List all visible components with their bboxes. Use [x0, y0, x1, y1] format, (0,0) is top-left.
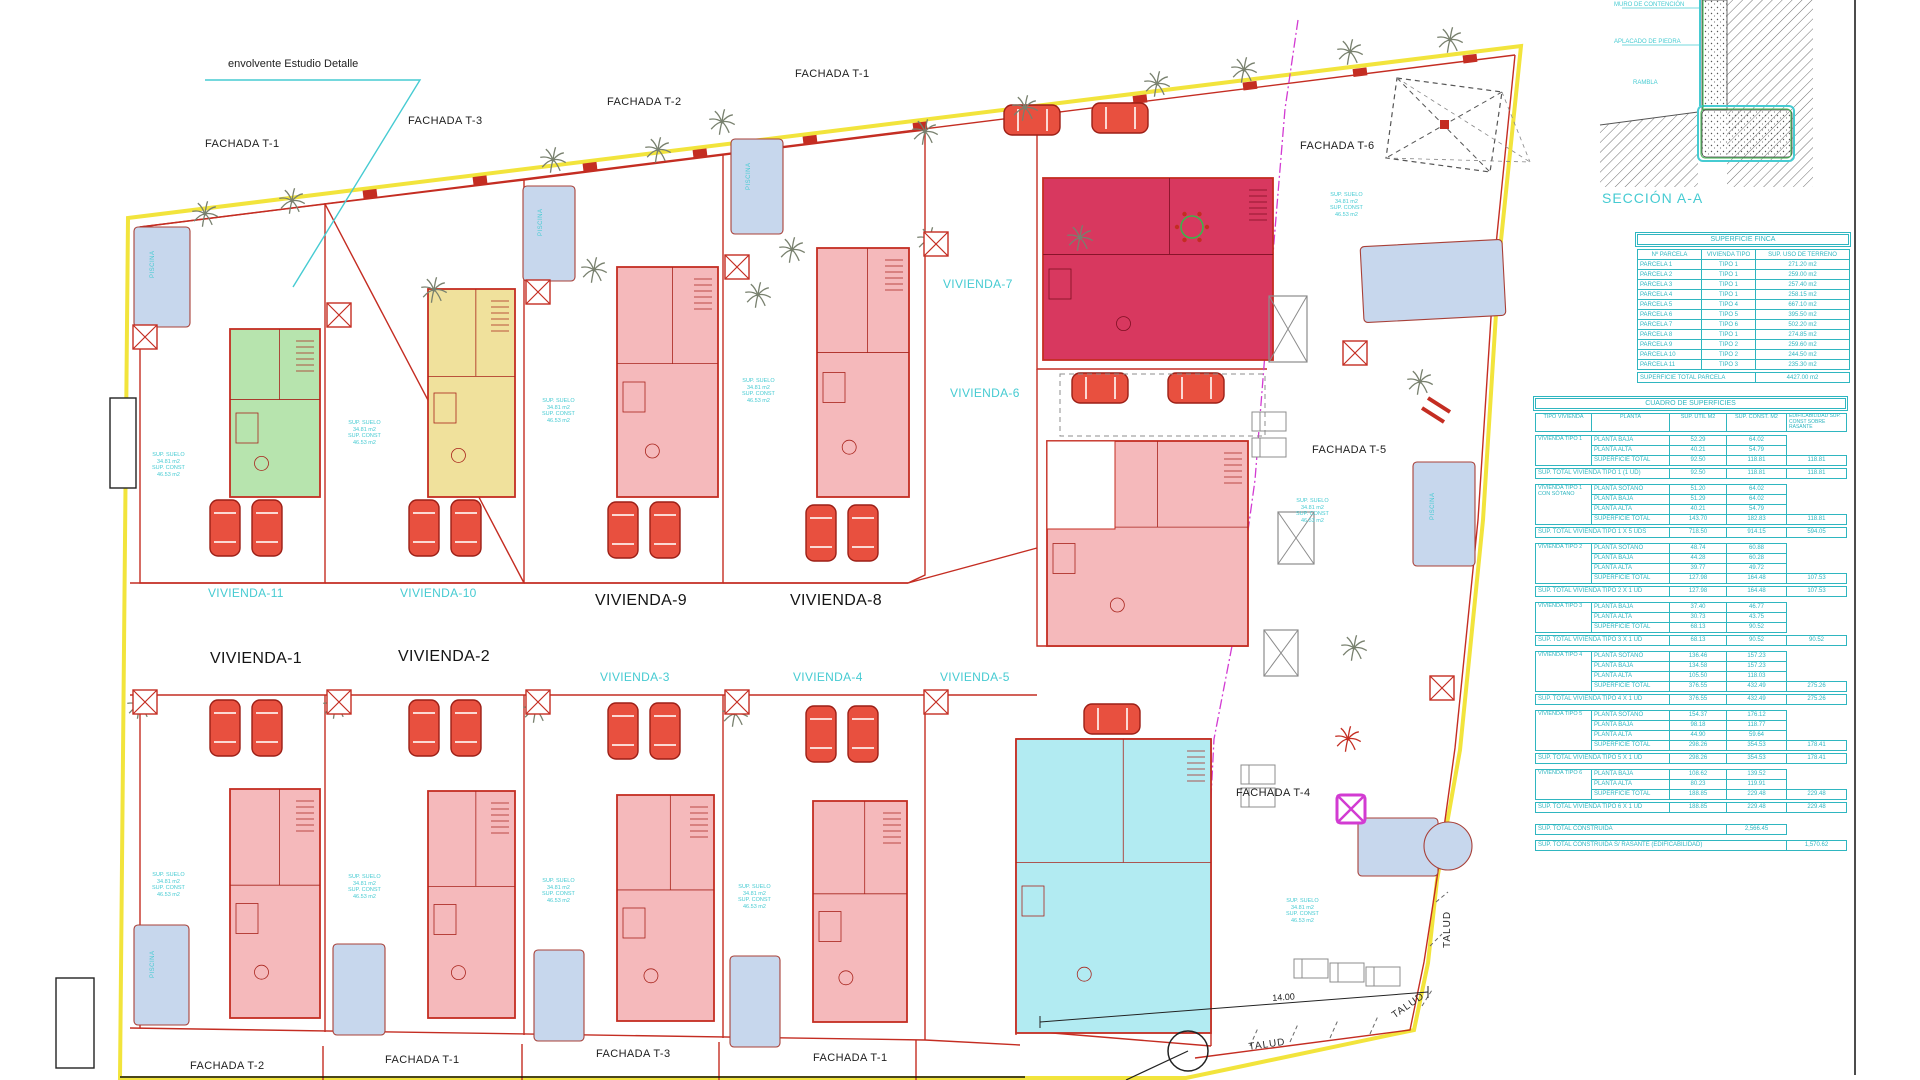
label-vivienda-v3: VIVIENDA-3: [600, 670, 670, 684]
table-cell: 127.98: [1670, 586, 1727, 596]
table-cell: 92.50: [1670, 468, 1727, 478]
table-cell: 298.26: [1670, 753, 1727, 763]
path-shape: [1437, 37, 1450, 40]
circle-shape: [1023, 106, 1026, 109]
house-annotation: SUP. SUELO34.81 m2SUP. CONST46.53 m2: [738, 884, 771, 910]
column-header: SUP. ÚTIL M2: [1670, 414, 1727, 432]
table-cell: 118.81: [1787, 514, 1847, 524]
table-cell: 59.64: [1727, 730, 1787, 740]
table-cell: PLANTA BAJA: [1592, 720, 1670, 730]
label-fachada-t1-topleft: FACHADA T-1: [205, 138, 280, 150]
table-cell: 49.72: [1727, 563, 1787, 573]
garage: [1047, 441, 1115, 529]
table-cell: SUP. TOTAL VIVIENDA TIPO 1 X 5 UDS: [1536, 527, 1670, 537]
rect-shape: [1702, 0, 1727, 110]
label-fachada-t5: FACHADA T-5: [1312, 444, 1387, 456]
house-vivienda-3: [617, 795, 714, 1021]
magenta-marker-icon: [1337, 795, 1365, 823]
table-row: VIVIENDA TIPO 5PLANTA SÓTANO154.37176.12: [1536, 710, 1847, 720]
car-icon: [210, 500, 240, 556]
table-row: VIVIENDA TIPO 6PLANTA BAJA108.62139.52: [1536, 769, 1847, 779]
table-cell: PARCELA 6: [1638, 310, 1702, 320]
label-fachada-t3-bottom: FACHADA T-3: [596, 1048, 671, 1060]
lounger-icon: [1366, 967, 1400, 986]
path-shape: [594, 263, 605, 270]
rect-shape: [1252, 438, 1286, 457]
table-cell: [1787, 720, 1847, 730]
annotation-line: 46.53 m2: [542, 898, 575, 905]
column-header: VIVIENDA TIPO: [1702, 250, 1756, 260]
label-vivienda-v11: VIVIENDA-11: [208, 586, 284, 600]
section-label-aplacado: APLACADO DE PIEDRA: [1614, 39, 1681, 45]
path-shape: [1347, 52, 1350, 65]
car-icon: [848, 505, 878, 561]
table-cell: 134.58: [1670, 661, 1727, 671]
car-icon: [608, 703, 638, 759]
table-cell: PLANTA ALTA: [1592, 671, 1670, 681]
table-cell: [1787, 602, 1847, 612]
label-fachada-t1-bottom-left: FACHADA T-1: [385, 1054, 460, 1066]
palm-tree-icon: [1437, 27, 1462, 52]
service-box: [110, 398, 136, 488]
table-shape: SUP. TOTAL CONSTRUIDA S/ RASANTE (EDIFIC…: [1535, 840, 1847, 851]
rect-shape: [1241, 765, 1275, 784]
table-row: SUP. TOTAL VIVIENDA TIPO 4 X 1 UD376.554…: [1536, 694, 1847, 704]
survey-mark-icon: [803, 135, 818, 145]
finca-table-title: SUPERFICIE FINCA: [1637, 234, 1849, 245]
path-shape: [540, 157, 553, 160]
path-shape: [1407, 379, 1420, 382]
table-cell: SUP. TOTAL VIVIENDA TIPO 3 X 1 UD: [1536, 635, 1670, 645]
car-icon: [1004, 105, 1060, 135]
table-cell: PARCELA 4: [1638, 290, 1702, 300]
label-piscina-3: PISCINA: [1430, 492, 1436, 520]
rect-shape: [1043, 178, 1273, 360]
annotation-line: SUP. SUELO: [152, 452, 185, 459]
path-shape: [658, 143, 669, 150]
x-marker-icon: [526, 280, 550, 304]
x-marker-icon: [327, 690, 351, 714]
table-cell: 229.48: [1787, 802, 1847, 812]
path-shape: [1244, 63, 1255, 70]
annotation-line: 46.53 m2: [1296, 518, 1329, 525]
envolvente-label: envolvente Estudio Detalle: [228, 58, 358, 70]
tbody-shape: VIVIENDA TIPO 3PLANTA BAJA37.4046.77PLAN…: [1536, 602, 1847, 632]
table-cell: 178.41: [1787, 753, 1847, 763]
x-marker-icon: [327, 303, 351, 327]
table-cell: PARCELA 5: [1638, 300, 1702, 310]
car-icon: [1084, 704, 1140, 734]
path-shape: [1420, 375, 1431, 382]
table-cell: 51.29: [1670, 494, 1727, 504]
table-shape: SUPERFICIE TOTAL PARCELA4427.00 m2: [1637, 372, 1850, 383]
rect-shape: [1440, 120, 1449, 129]
circle-shape: [656, 148, 659, 151]
table-cell: 244.50 m2: [1756, 350, 1850, 360]
table-shape: Nº PARCELAVIVIENDA TIPOSUP. USO DE TERRE…: [1637, 249, 1850, 370]
annotation-line: 46.53 m2: [348, 894, 381, 901]
table-row: VIVIENDA TIPO 4PLANTA SÓTANO136.46157.23: [1536, 651, 1847, 661]
label-vivienda-v5: VIVIENDA-5: [940, 670, 1010, 684]
pool: [523, 186, 575, 281]
rect-shape: [608, 703, 638, 759]
tbody-shape: VIVIENDA TIPO 6PLANTA BAJA108.62139.52PL…: [1536, 769, 1847, 799]
rect-shape: [451, 700, 481, 756]
table-cell: PLANTA SÓTANO: [1592, 484, 1670, 494]
circle-shape: [1418, 380, 1421, 383]
label-vivienda-v7: VIVIENDA-7: [943, 277, 1013, 291]
table-cell: 274.85 m2: [1756, 330, 1850, 340]
table-cell: [1787, 484, 1847, 494]
table-cell: PLANTA BAJA: [1592, 769, 1670, 779]
table-cell: 90.52: [1787, 635, 1847, 645]
line-shape: [1370, 1016, 1378, 1034]
table-shape: SUP. TOTAL VIVIENDA TIPO 2 X 1 UD127.981…: [1535, 586, 1847, 597]
circle-shape: [432, 288, 435, 291]
table-cell: SUPERFICIE TOTAL: [1592, 622, 1670, 632]
table-cell: 90.52: [1727, 635, 1787, 645]
table-cell: SUPERFICIE TOTAL: [1592, 573, 1670, 583]
table-cell: VIVIENDA TIPO 3: [1536, 602, 1592, 632]
circle-shape: [756, 293, 759, 296]
pool: [134, 925, 189, 1025]
circle-shape: [720, 120, 723, 123]
annotation-line: SUP. SUELO: [152, 872, 185, 879]
path-shape: [758, 288, 769, 295]
table-row: VIVIENDA TIPO 1 CON SÓTANOPLANTA SÓTANO5…: [1536, 484, 1847, 494]
circle-shape: [1448, 38, 1451, 41]
table-cell: TIPO 1: [1702, 290, 1756, 300]
annotation-line: SUP. CONST: [1286, 911, 1319, 918]
path-shape: [1157, 77, 1168, 84]
label-vivienda-v2: VIVIENDA-2: [398, 648, 490, 666]
house-vivienda-10: [428, 289, 515, 497]
path-shape: [722, 115, 733, 122]
tr-shape: TIPO VIVIENDAPLANTASUP. ÚTIL M2SUP. CONS…: [1536, 414, 1847, 432]
table-shape: VIVIENDA TIPO 5PLANTA SÓTANO154.37176.12…: [1535, 710, 1847, 751]
table-cell: 235.30 m2: [1756, 360, 1850, 370]
table-cell: 2,566.45: [1727, 824, 1787, 834]
table-cell: SUPERFICIE TOTAL: [1592, 789, 1670, 799]
path-shape: [1341, 645, 1354, 648]
path-shape: [792, 250, 799, 261]
table-cell: TIPO 1: [1702, 270, 1756, 280]
tr-shape: Nº PARCELAVIVIENDA TIPOSUP. USO DE TERRE…: [1638, 250, 1850, 260]
tr-shape: SUPERFICIE TOTAL PARCELA4427.00 m2: [1638, 373, 1850, 383]
pool: [730, 956, 780, 1047]
table-cell: 718.50: [1670, 527, 1727, 537]
rect-shape: [1168, 373, 1224, 403]
annotation-line: 46.53 m2: [152, 472, 185, 479]
label-piscina-4: PISCINA: [150, 950, 156, 978]
label-vivienda-v1: VIVIENDA-1: [210, 650, 302, 668]
table-cell: PLANTA BAJA: [1592, 661, 1670, 671]
car-icon: [806, 505, 836, 561]
path-shape: [789, 250, 792, 263]
path-shape: [553, 153, 564, 160]
column-header: PLANTA: [1592, 414, 1670, 432]
car-icon: [608, 502, 638, 558]
cuadro-superficies-table: CUADRO DE SUPERFICIESTIPO VIVIENDAPLANTA…: [1535, 398, 1846, 851]
car-icon: [252, 500, 282, 556]
column-header: SUP. USO DE TERRENO: [1756, 250, 1850, 260]
palm-tree-icon: [1407, 369, 1432, 394]
table-cell: PARCELA 7: [1638, 320, 1702, 330]
table-cell: PLANTA BAJA: [1592, 435, 1670, 445]
path-shape: [1351, 648, 1354, 661]
x-marker-icon: [924, 232, 948, 256]
table-cell: [1787, 671, 1847, 681]
table-cell: 64.02: [1727, 494, 1787, 504]
survey-mark-icon: [1353, 67, 1368, 77]
annotation-line: SUP. CONST: [738, 897, 771, 904]
table-row: SUP. TOTAL VIVIENDA TIPO 2 X 1 UD127.981…: [1536, 586, 1847, 596]
table-cell: 157.23: [1727, 661, 1787, 671]
table-cell: [1787, 553, 1847, 563]
table-shape: TIPO VIVIENDAPLANTASUP. ÚTIL M2SUP. CONS…: [1535, 413, 1847, 432]
label-piscina-0: PISCINA: [150, 250, 156, 278]
tbody-shape: TIPO VIVIENDAPLANTASUP. ÚTIL M2SUP. CONS…: [1536, 414, 1847, 432]
rect-shape: [409, 500, 439, 556]
table-cell: 54.79: [1727, 445, 1787, 455]
table-cell: 119.91: [1727, 779, 1787, 789]
table-cell: TIPO 2: [1702, 340, 1756, 350]
tbody-shape: SUP. TOTAL VIVIENDA TIPO 2 X 1 UD127.981…: [1536, 586, 1847, 596]
circle-shape: [1155, 82, 1158, 85]
house-vivienda-2: [428, 791, 515, 1018]
table-cell: 354.53: [1727, 740, 1787, 750]
table-cell: 432.49: [1727, 694, 1787, 704]
circle-shape: [1175, 225, 1179, 229]
path-shape: [292, 201, 299, 212]
table-cell: 39.77: [1670, 563, 1727, 573]
table-cell: 64.02: [1727, 435, 1787, 445]
rect-shape: [608, 502, 638, 558]
lounger-icon: [1294, 959, 1328, 978]
table-shape: VIVIENDA TIPO 2PLANTA SÓTANO48.7460.88PL…: [1535, 543, 1847, 584]
table-cell: 154.37: [1670, 710, 1727, 720]
palm-tree-icon: [745, 282, 770, 307]
pool: [1424, 822, 1472, 870]
lounger-icon: [1330, 963, 1364, 982]
table-cell: SUP. TOTAL VIVIENDA TIPO 5 X 1 UD: [1536, 753, 1670, 763]
path-shape: [1417, 382, 1420, 395]
path-shape: [1354, 648, 1361, 659]
path-shape: [735, 714, 742, 725]
table-cell: 176.12: [1727, 710, 1787, 720]
tbody-shape: SUP. TOTAL VIVIENDA TIPO 4 X 1 UD376.554…: [1536, 694, 1847, 704]
path-shape: [1354, 641, 1365, 648]
table-cell: SUPERFICIE TOTAL: [1592, 514, 1670, 524]
circle-shape: [1197, 238, 1201, 242]
pool: [534, 950, 584, 1041]
path-shape: [1420, 382, 1427, 393]
table-cell: PLANTA BAJA: [1592, 494, 1670, 504]
table-cell: [1787, 543, 1847, 553]
rect-shape: [806, 706, 836, 762]
table-cell: 229.48: [1787, 789, 1847, 799]
tbody-shape: SUP. TOTAL VIVIENDA TIPO 1 (1 UD)92.5011…: [1536, 468, 1847, 478]
table-cell: 164.48: [1727, 573, 1787, 583]
table-cell: SUP. TOTAL VIVIENDA TIPO 4 X 1 UD: [1536, 694, 1670, 704]
annotation-line: SUP. CONST: [348, 887, 381, 894]
table-cell: 44.90: [1670, 730, 1727, 740]
survey-mark-icon: [693, 148, 708, 158]
table-shape: SUP. TOTAL VIVIENDA TIPO 1 (1 UD)92.5011…: [1535, 468, 1847, 479]
table-row: VIVIENDA TIPO 1PLANTA BAJA52.2964.02: [1536, 435, 1847, 445]
table-cell: [1787, 445, 1847, 455]
table-cell: 258.15 m2: [1756, 290, 1850, 300]
path-shape: [581, 267, 594, 270]
rect-shape: [848, 706, 878, 762]
table-cell: SUPERFICIE TOTAL: [1592, 681, 1670, 691]
x-marker-icon: [133, 690, 157, 714]
house-annotation: SUP. SUELO34.81 m2SUP. CONST46.53 m2: [1296, 498, 1329, 524]
table-cell: 127.98: [1670, 573, 1727, 583]
table-cell: 271.20 m2: [1756, 260, 1850, 270]
table-cell: 354.53: [1727, 753, 1787, 763]
circle-shape: [1348, 50, 1351, 53]
table-cell: 80.23: [1670, 779, 1727, 789]
house-annotation: SUP. SUELO34.81 m2SUP. CONST46.53 m2: [1286, 898, 1319, 924]
annotation-line: SUP. SUELO: [542, 398, 575, 405]
path-shape: [758, 295, 765, 306]
path-shape: [1335, 736, 1348, 739]
path-shape: [205, 80, 420, 287]
table-cell: 60.28: [1727, 553, 1787, 563]
circle-shape: [1346, 737, 1349, 740]
car-icon: [848, 706, 878, 762]
circle-shape: [1205, 225, 1209, 229]
tbody-shape: SUP. TOTAL CONSTRUIDA2,566.45: [1536, 824, 1847, 834]
path-shape: [1144, 81, 1157, 84]
annotation-line: SUP. SUELO: [542, 878, 575, 885]
car-icon: [409, 700, 439, 756]
house-vivienda-9: [617, 267, 718, 497]
envolvente-leader: [205, 80, 420, 287]
circle-shape: [592, 268, 595, 271]
annotation-line: SUP. SUELO: [738, 884, 771, 891]
label-vivienda-v8: VIVIENDA-8: [790, 592, 882, 610]
car-icon: [409, 500, 439, 556]
annotation-line: 46.53 m2: [1286, 918, 1319, 925]
table-cell: 667.10 m2: [1756, 300, 1850, 310]
annotation-line: SUP. CONST: [152, 885, 185, 892]
table-cell: 188.85: [1670, 789, 1727, 799]
table-cell: PARCELA 9: [1638, 340, 1702, 350]
table-cell: 52.29: [1670, 435, 1727, 445]
table-cell: 275.26: [1787, 681, 1847, 691]
house-annotation: SUP. SUELO34.81 m2SUP. CONST46.53 m2: [152, 872, 185, 898]
car-icon: [451, 700, 481, 756]
table-cell: 395.50 m2: [1756, 310, 1850, 320]
circle-shape: [1242, 68, 1245, 71]
path-shape: [709, 119, 722, 122]
lounger-icon: [1252, 412, 1286, 431]
palm-tree-icon: [540, 147, 565, 172]
table-row: PARCELA 8TIPO 1274.85 m2: [1638, 330, 1850, 340]
table-cell: 92.50: [1670, 455, 1727, 465]
table-cell: VIVIENDA TIPO 4: [1536, 651, 1592, 691]
path-shape: [1264, 630, 1298, 676]
table-shape: VIVIENDA TIPO 1PLANTA BAJA52.2964.02PLAN…: [1535, 435, 1847, 466]
annotation-line: 46.53 m2: [738, 904, 771, 911]
annotation-line: SUP. CONST: [542, 411, 575, 418]
table-cell: VIVIENDA TIPO 2: [1536, 543, 1592, 583]
path-shape: [1337, 49, 1350, 52]
table-shape: SUP. TOTAL VIVIENDA TIPO 5 X 1 UD298.263…: [1535, 753, 1847, 764]
label-fachada-t6: FACHADA T-6: [1300, 140, 1375, 152]
table-cell: 157.23: [1727, 651, 1787, 661]
path-shape: [202, 214, 205, 227]
house-annotation: SUP. SUELO34.81 m2SUP. CONST46.53 m2: [348, 874, 381, 900]
palm-tree-icon: [1337, 39, 1362, 64]
column-header: SUP. CONST. M2: [1727, 414, 1787, 432]
north-symbol: [1126, 1031, 1208, 1080]
table-cell: 178.41: [1787, 740, 1847, 750]
table-cell: 376.55: [1670, 694, 1727, 704]
rect-shape: [252, 500, 282, 556]
palm-tree-icon: [279, 188, 304, 213]
tbody-shape: SUP. TOTAL VIVIENDA TIPO 1 X 5 UDS718.50…: [1536, 527, 1847, 537]
tr-shape: SUP. TOTAL CONSTRUIDA2,566.45: [1536, 824, 1847, 834]
annotation-line: SUP. SUELO: [348, 874, 381, 881]
rect-shape: [1092, 103, 1148, 133]
car-icon: [1092, 103, 1148, 133]
survey-mark-icon: [1243, 81, 1258, 91]
table-cell: PLANTA ALTA: [1592, 504, 1670, 514]
tbody-shape: Nº PARCELAVIVIENDA TIPOSUP. USO DE TERRE…: [1638, 250, 1850, 370]
pool: [1360, 239, 1506, 322]
table-cell: 275.26: [1787, 694, 1847, 704]
table-cell: 40.21: [1670, 504, 1727, 514]
table-row: SUP. TOTAL VIVIENDA TIPO 6 X 1 UD188.852…: [1536, 802, 1847, 812]
table-cell: 4427.00 m2: [1756, 373, 1850, 383]
tbody-shape: SUP. TOTAL CONSTRUIDA S/ RASANTE (EDIFIC…: [1536, 840, 1847, 850]
table-cell: [1787, 494, 1847, 504]
annotation-line: 46.53 m2: [1330, 212, 1363, 219]
palm-tree-icon: [192, 201, 217, 226]
house-vivienda-7: [1043, 178, 1273, 360]
line-shape: [1436, 892, 1448, 902]
tbody-shape: VIVIENDA TIPO 5PLANTA SÓTANO154.37176.12…: [1536, 710, 1847, 750]
label-fachada-t2-bottom: FACHADA T-2: [190, 1060, 265, 1072]
survey-mark-icon: [473, 175, 488, 185]
car-icon: [650, 703, 680, 759]
annotation-line: 46.53 m2: [742, 398, 775, 405]
house-annotation: SUP. SUELO34.81 m2SUP. CONST46.53 m2: [542, 878, 575, 904]
table-cell: 118.77: [1727, 720, 1787, 730]
annotation-line: 46.53 m2: [152, 892, 185, 899]
label-piscina-2: PISCINA: [746, 162, 752, 190]
path-shape: [745, 292, 758, 295]
table-cell: VIVIENDA TIPO 1 CON SÓTANO: [1536, 484, 1592, 524]
house-annotation: SUP. SUELO34.81 m2SUP. CONST46.53 m2: [152, 452, 185, 478]
car-icon: [650, 502, 680, 558]
table-cell: 44.28: [1670, 553, 1727, 563]
table-row: PARCELA 2TIPO 1259.00 m2: [1638, 270, 1850, 280]
rect-shape: [409, 700, 439, 756]
label-talud-vertical: TALUD: [1442, 911, 1453, 948]
column-header: EDIFICABILIDAD SUP. CONST SOBRE RASANTE: [1787, 414, 1847, 432]
table-cell: TIPO 1: [1702, 330, 1756, 340]
path-shape: [1450, 40, 1457, 51]
table-cell: PLANTA SÓTANO: [1592, 651, 1670, 661]
table-cell: 136.46: [1670, 651, 1727, 661]
lounger-icon: [1241, 765, 1275, 784]
path-shape: [719, 122, 722, 135]
path-shape: [1345, 739, 1348, 752]
